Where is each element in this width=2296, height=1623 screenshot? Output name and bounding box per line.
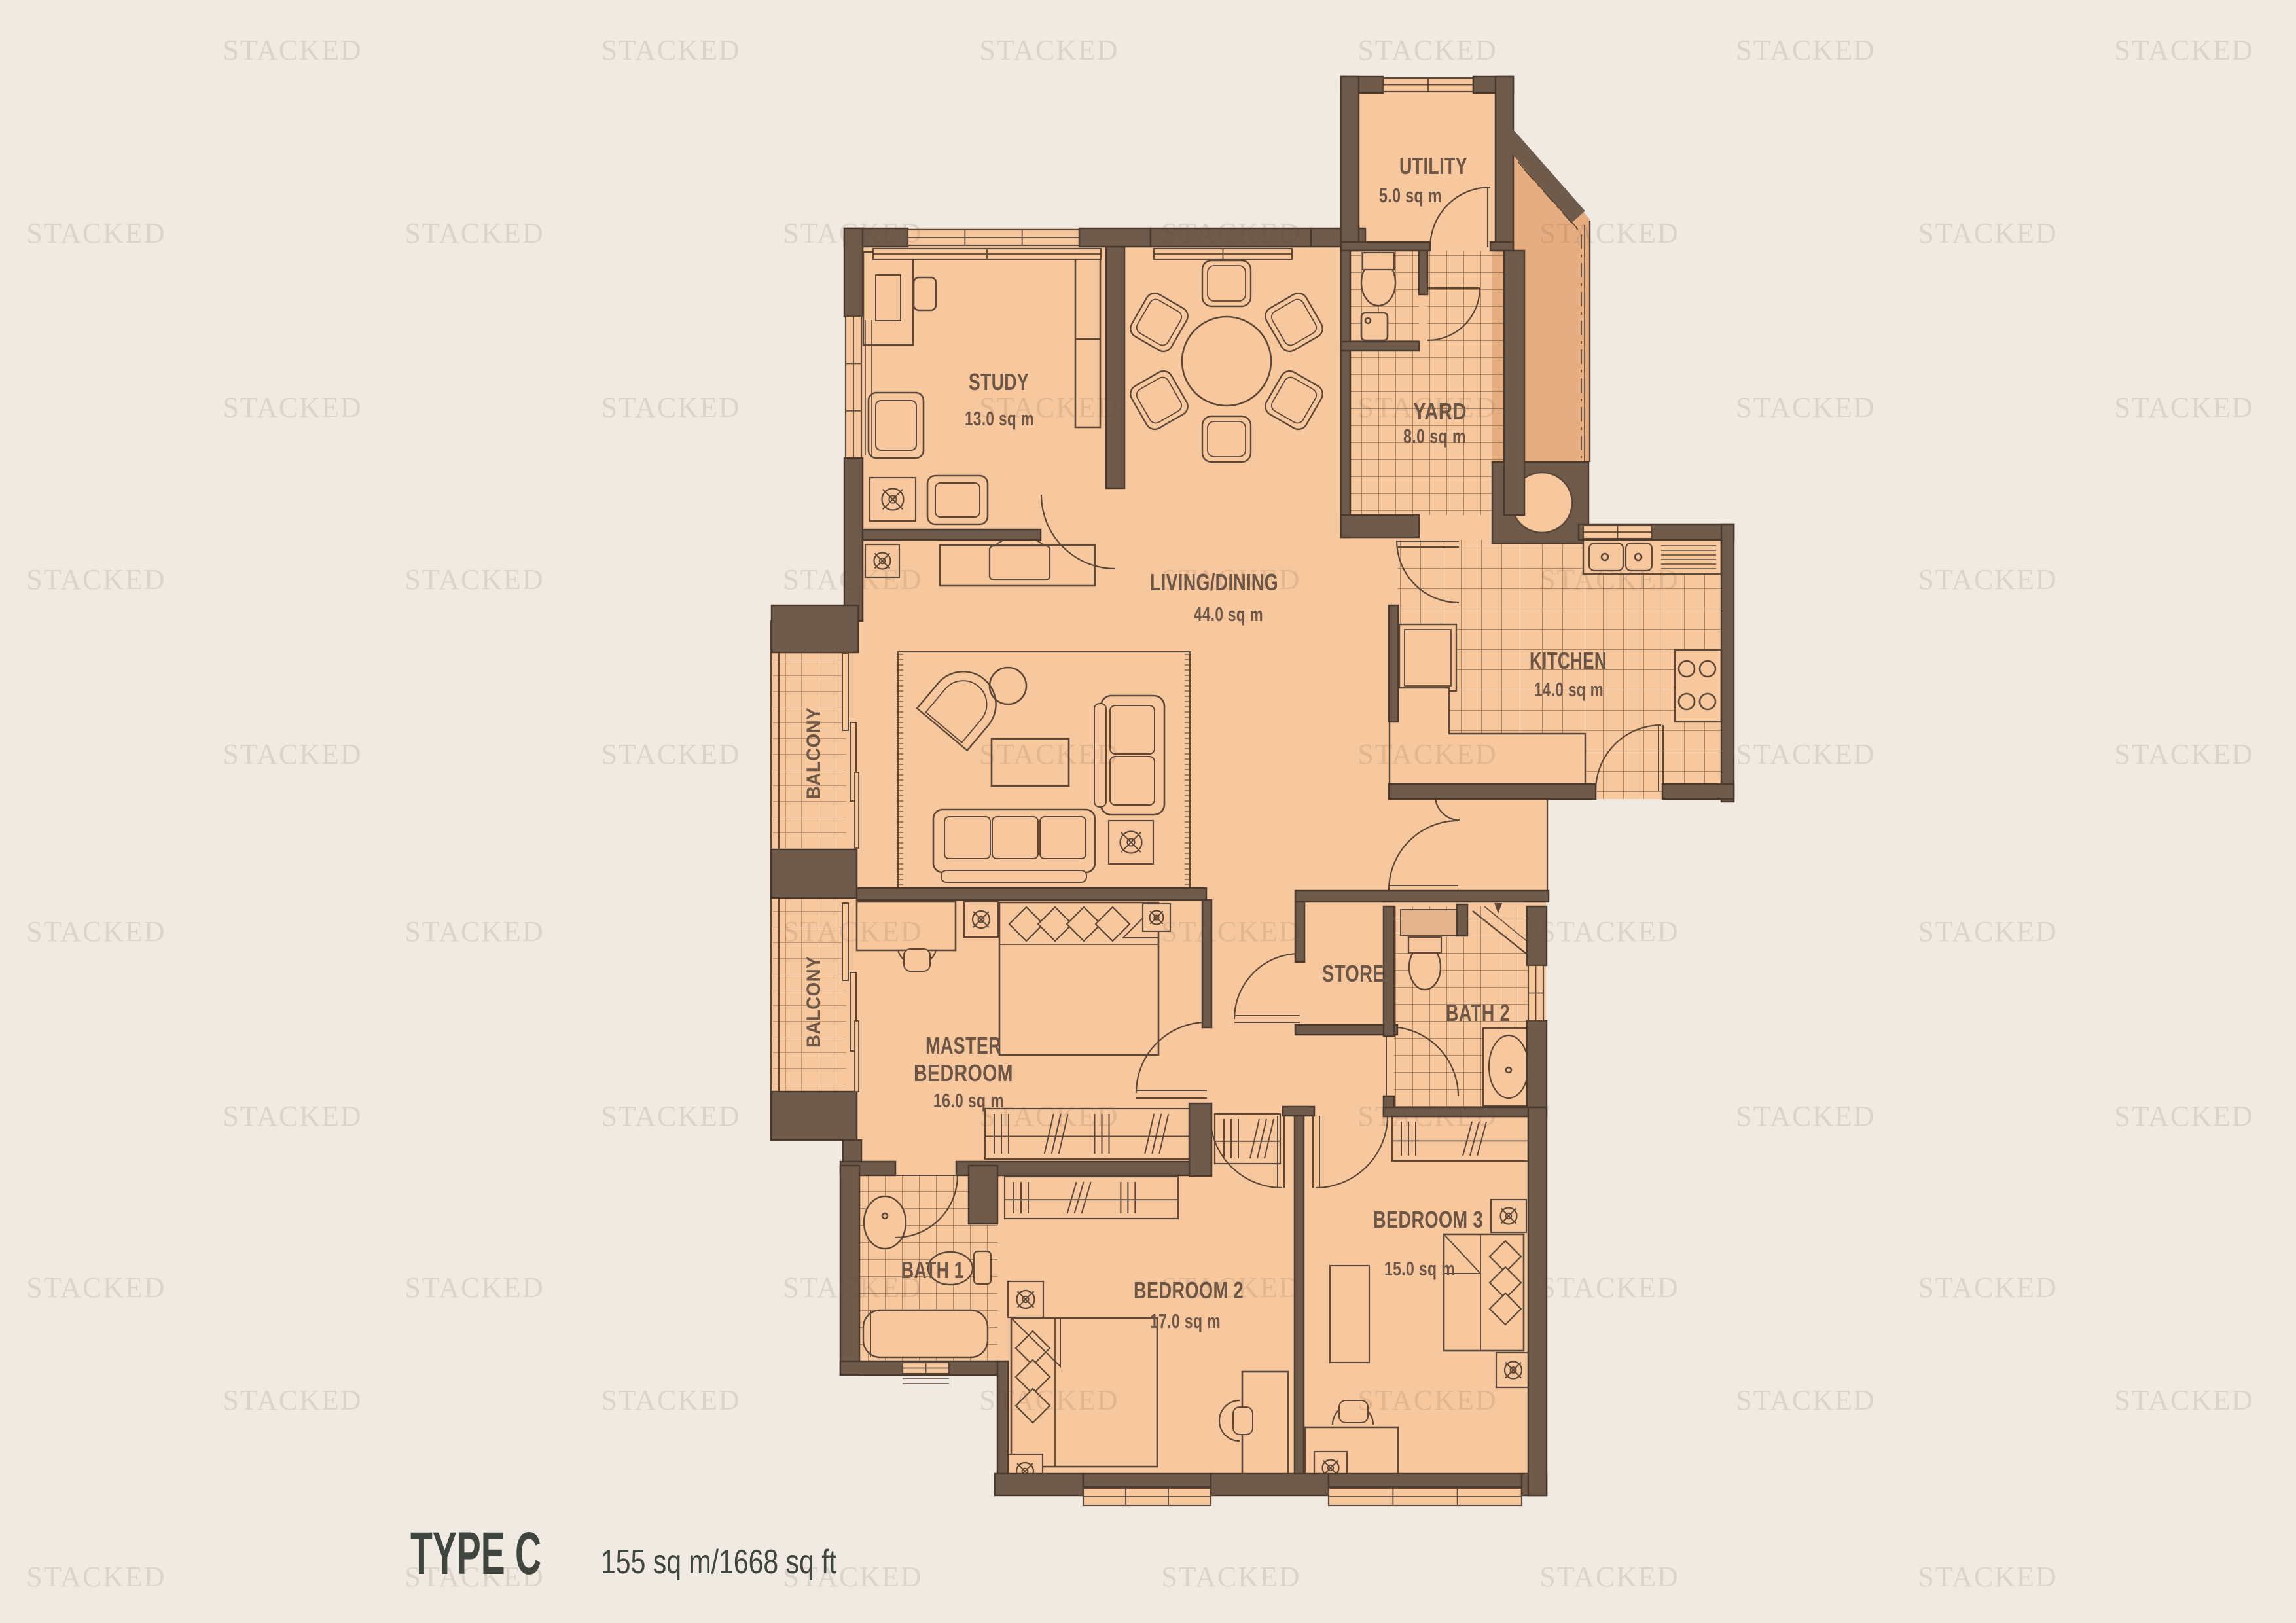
svg-text:STACKED: STACKED — [223, 34, 362, 66]
svg-text:STACKED: STACKED — [601, 1100, 740, 1132]
svg-text:STACKED: STACKED — [1357, 738, 1497, 770]
svg-text:STACKED: STACKED — [1736, 738, 1875, 770]
svg-text:STACKED: STACKED — [1736, 1100, 1875, 1132]
svg-text:STACKED: STACKED — [404, 217, 544, 249]
svg-text:STACKED: STACKED — [223, 1384, 362, 1416]
svg-text:STACKED: STACKED — [26, 563, 166, 596]
svg-text:STACKED: STACKED — [2114, 1384, 2253, 1416]
svg-text:STACKED: STACKED — [601, 1384, 740, 1416]
svg-text:5.0 sq m: 5.0 sq m — [1379, 184, 1442, 207]
svg-text:STACKED: STACKED — [26, 1561, 166, 1593]
svg-text:STACKED: STACKED — [601, 738, 740, 770]
svg-text:STACKED: STACKED — [783, 1272, 922, 1304]
svg-text:17.0 sq m: 17.0 sq m — [1150, 1310, 1221, 1332]
svg-text:STACKED: STACKED — [783, 1561, 922, 1593]
svg-text:STACKED: STACKED — [1357, 1384, 1497, 1416]
svg-text:STACKED: STACKED — [979, 1100, 1119, 1132]
svg-text:STACKED: STACKED — [1736, 391, 1875, 423]
svg-text:STACKED: STACKED — [1161, 1561, 1300, 1593]
svg-text:8.0 sq m: 8.0 sq m — [1403, 425, 1466, 448]
svg-text:STACKED: STACKED — [1736, 1384, 1875, 1416]
svg-text:BEDROOM: BEDROOM — [914, 1060, 1013, 1086]
svg-text:44.0 sq m: 44.0 sq m — [1194, 603, 1263, 626]
svg-text:STACKED: STACKED — [1161, 1272, 1300, 1304]
svg-text:STACKED: STACKED — [1918, 1272, 2057, 1304]
svg-text:KITCHEN: KITCHEN — [1530, 647, 1607, 674]
svg-text:STACKED: STACKED — [1357, 391, 1497, 423]
svg-text:BEDROOM 3: BEDROOM 3 — [1373, 1206, 1483, 1233]
svg-text:STACKED: STACKED — [223, 1100, 362, 1132]
svg-text:STACKED: STACKED — [1161, 916, 1300, 948]
svg-text:STACKED: STACKED — [404, 916, 544, 948]
svg-text:STACKED: STACKED — [404, 1561, 544, 1593]
svg-text:STACKED: STACKED — [1357, 34, 1497, 66]
svg-text:STACKED: STACKED — [1161, 563, 1300, 596]
svg-text:STACKED: STACKED — [601, 34, 740, 66]
svg-text:UTILITY: UTILITY — [1399, 152, 1467, 179]
svg-text:STACKED: STACKED — [979, 1384, 1119, 1416]
svg-text:STACKED: STACKED — [1539, 217, 1679, 249]
svg-text:STACKED: STACKED — [2114, 738, 2253, 770]
svg-text:STACKED: STACKED — [404, 1272, 544, 1304]
svg-text:STACKED: STACKED — [601, 391, 740, 423]
svg-text:STACKED: STACKED — [979, 34, 1119, 66]
svg-text:STACKED: STACKED — [1918, 916, 2057, 948]
svg-text:STACKED: STACKED — [979, 391, 1119, 423]
svg-text:STACKED: STACKED — [2114, 34, 2253, 66]
svg-text:15.0 sq m: 15.0 sq m — [1384, 1257, 1455, 1280]
svg-text:STACKED: STACKED — [223, 391, 362, 423]
svg-text:BALCONY: BALCONY — [803, 956, 825, 1048]
svg-text:STACKED: STACKED — [1736, 34, 1875, 66]
svg-text:STACKED: STACKED — [223, 738, 362, 770]
svg-text:STACKED: STACKED — [1918, 1561, 2057, 1593]
svg-text:STACKED: STACKED — [783, 563, 922, 596]
svg-text:STACKED: STACKED — [2114, 1100, 2253, 1132]
svg-text:STACKED: STACKED — [404, 563, 544, 596]
svg-text:STACKED: STACKED — [26, 916, 166, 948]
svg-text:STACKED: STACKED — [1539, 916, 1679, 948]
svg-text:STORE: STORE — [1322, 960, 1385, 987]
svg-text:STACKED: STACKED — [1918, 563, 2057, 596]
svg-text:BATH 2: BATH 2 — [1446, 999, 1510, 1026]
svg-text:STACKED: STACKED — [26, 217, 166, 249]
svg-text:STACKED: STACKED — [26, 1272, 166, 1304]
svg-text:STACKED: STACKED — [1918, 217, 2057, 249]
svg-text:STACKED: STACKED — [1161, 217, 1300, 249]
svg-text:MASTER: MASTER — [925, 1032, 1001, 1059]
svg-text:STACKED: STACKED — [979, 738, 1119, 770]
svg-text:STACKED: STACKED — [783, 217, 922, 249]
svg-text:STACKED: STACKED — [1539, 563, 1679, 596]
svg-text:14.0 sq m: 14.0 sq m — [1534, 678, 1604, 701]
svg-text:STACKED: STACKED — [783, 916, 922, 948]
svg-text:STACKED: STACKED — [2114, 391, 2253, 423]
svg-text:STACKED: STACKED — [1539, 1561, 1679, 1593]
svg-text:STACKED: STACKED — [1357, 1100, 1497, 1132]
svg-text:BALCONY: BALCONY — [803, 707, 825, 799]
svg-text:STACKED: STACKED — [1539, 1272, 1679, 1304]
